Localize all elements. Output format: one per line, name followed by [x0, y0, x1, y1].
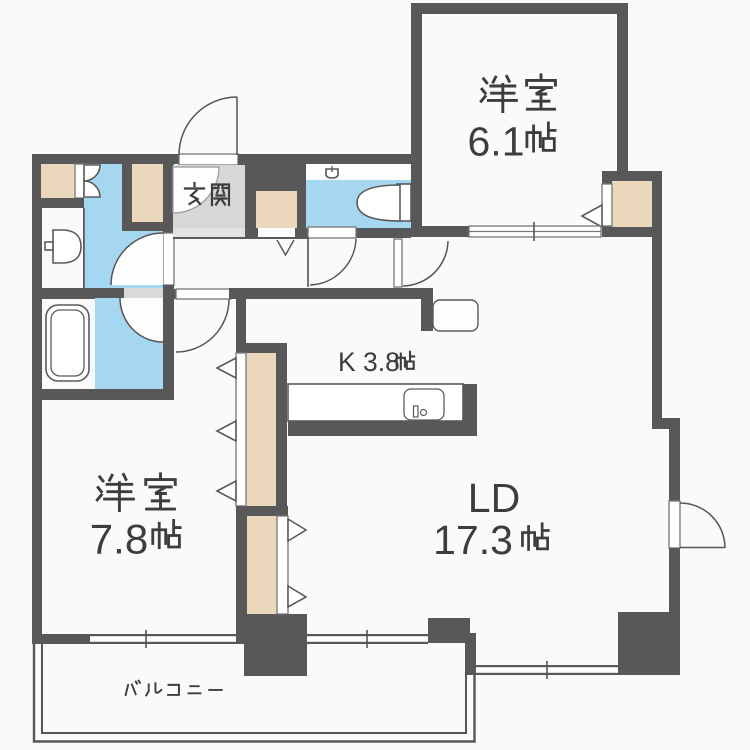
svg-text:K 3.8: K 3.8 [338, 347, 400, 377]
svg-text:17.3: 17.3 [433, 517, 513, 563]
svg-text:6.1: 6.1 [468, 119, 525, 165]
svg-text:7.8: 7.8 [90, 516, 148, 563]
svg-text:LD: LD [468, 475, 520, 521]
